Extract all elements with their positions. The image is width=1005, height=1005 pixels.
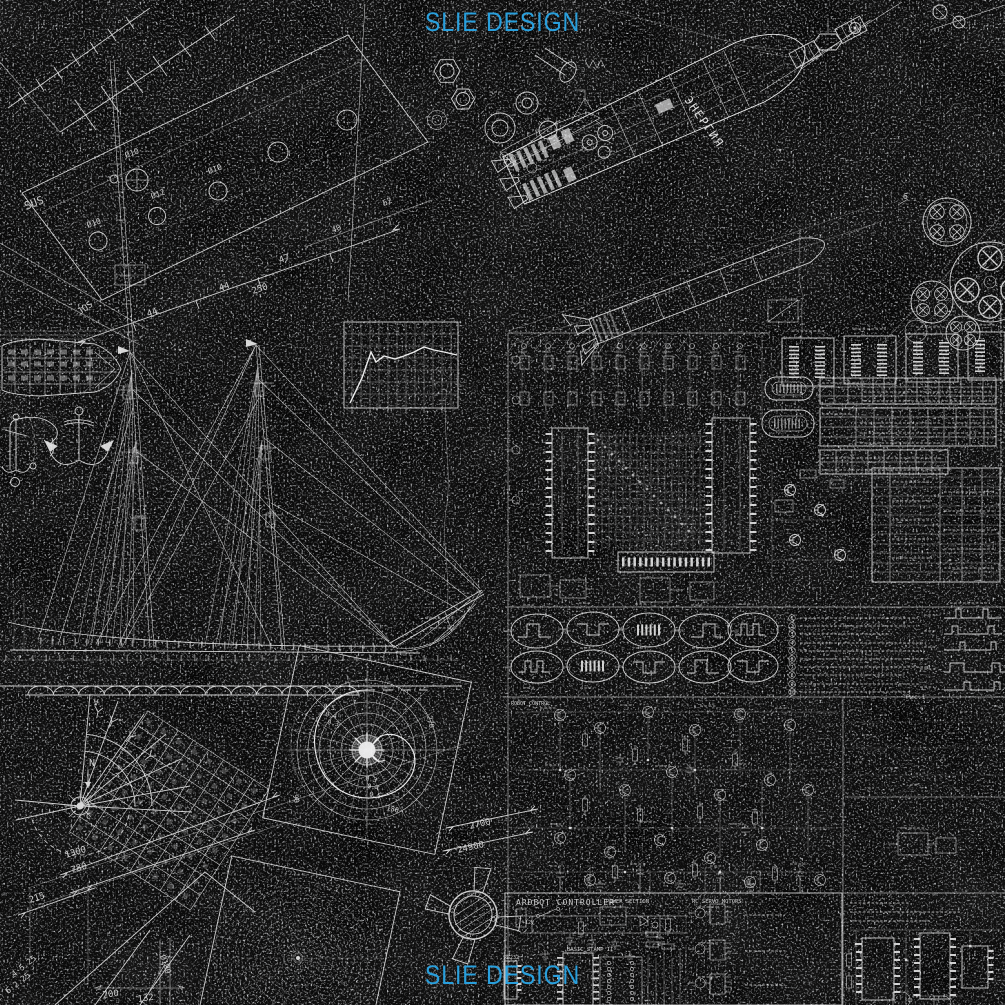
watermark-top: SLIE DESIGN [70,7,934,38]
film-grain-overlay [0,0,1005,1005]
watermark-bottom: SLIE DESIGN [70,960,934,991]
blueprint-art: SUS JOS Ø10 Ø12 Ø10 Ø10 44 44 250 47 40 … [0,0,1005,1005]
blueprint-collage-poster: SUS JOS Ø10 Ø12 Ø10 Ø10 44 44 250 47 40 … [0,0,1005,1005]
